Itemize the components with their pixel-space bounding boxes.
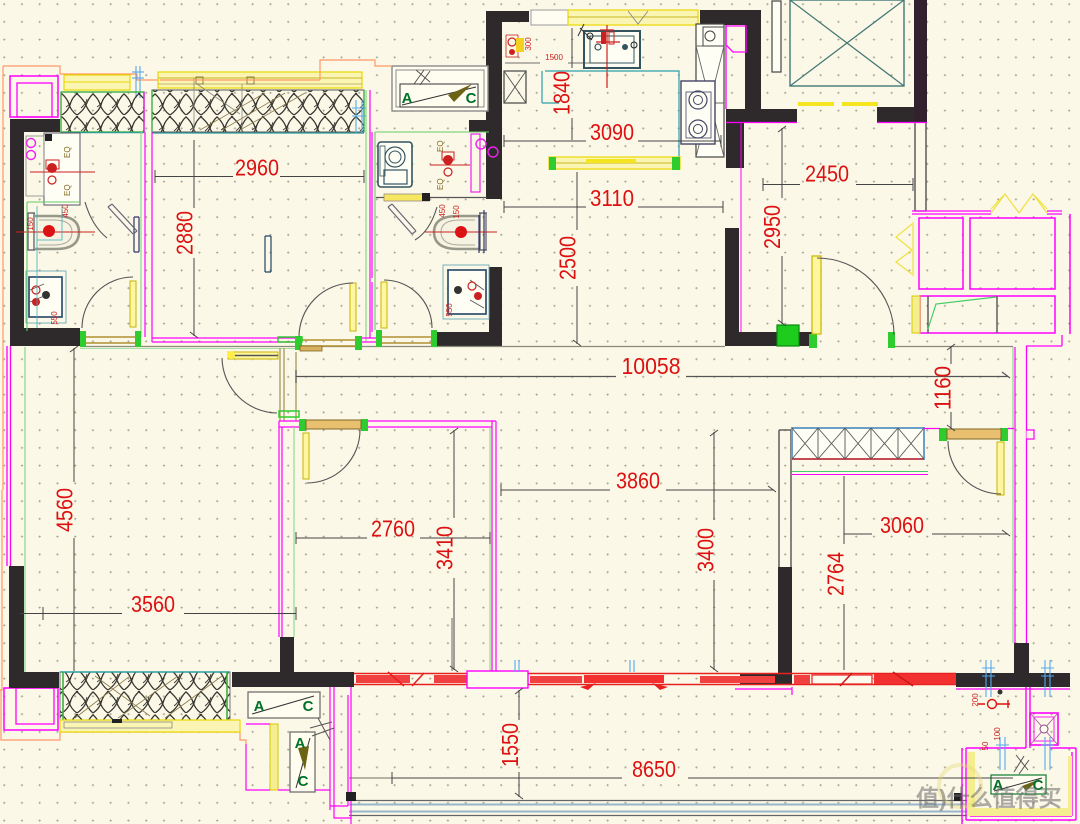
svg-text:200: 200 bbox=[971, 693, 980, 707]
svg-text:550: 550 bbox=[50, 311, 59, 325]
svg-text:A: A bbox=[295, 735, 306, 752]
svg-text:C: C bbox=[303, 698, 314, 715]
svg-text:2500: 2500 bbox=[555, 236, 581, 280]
svg-text:3090: 3090 bbox=[590, 119, 634, 145]
svg-text:4560: 4560 bbox=[52, 488, 78, 532]
svg-text:2760: 2760 bbox=[371, 516, 415, 542]
svg-text:3560: 3560 bbox=[131, 591, 175, 617]
svg-text:3110: 3110 bbox=[590, 185, 634, 211]
svg-text:150: 150 bbox=[452, 205, 461, 219]
svg-text:EQ: EQ bbox=[63, 146, 72, 158]
svg-text:值)什么值得买: 值)什么值得买 bbox=[916, 785, 1062, 811]
svg-text:3410: 3410 bbox=[432, 526, 458, 570]
svg-text:450: 450 bbox=[438, 204, 447, 218]
svg-text:3060: 3060 bbox=[880, 512, 924, 538]
svg-text:100: 100 bbox=[993, 727, 1002, 741]
svg-text:3860: 3860 bbox=[616, 468, 660, 494]
svg-text:EQ: EQ bbox=[63, 184, 72, 196]
svg-text:300: 300 bbox=[524, 37, 533, 51]
svg-text:2764: 2764 bbox=[823, 552, 849, 596]
svg-text:1500: 1500 bbox=[545, 53, 563, 62]
svg-text:2960: 2960 bbox=[235, 155, 279, 181]
svg-text:EQ: EQ bbox=[436, 178, 445, 190]
svg-text:150: 150 bbox=[26, 217, 35, 231]
svg-text:8650: 8650 bbox=[632, 756, 676, 782]
svg-text:2450: 2450 bbox=[805, 161, 849, 187]
svg-text:A: A bbox=[402, 90, 413, 107]
svg-text:50: 50 bbox=[981, 741, 990, 750]
svg-text:EQ: EQ bbox=[436, 140, 445, 152]
svg-text:2950: 2950 bbox=[759, 205, 785, 249]
svg-text:C: C bbox=[466, 90, 477, 107]
svg-text:C: C bbox=[298, 773, 309, 790]
svg-text:1160: 1160 bbox=[930, 366, 956, 410]
svg-text:3400: 3400 bbox=[693, 528, 719, 572]
svg-text:1840: 1840 bbox=[549, 71, 575, 115]
svg-text:1550: 1550 bbox=[497, 723, 523, 767]
svg-text:10058: 10058 bbox=[622, 353, 681, 379]
svg-text:A: A bbox=[254, 698, 265, 715]
svg-text:2880: 2880 bbox=[172, 211, 198, 255]
svg-text:550: 550 bbox=[445, 303, 454, 317]
